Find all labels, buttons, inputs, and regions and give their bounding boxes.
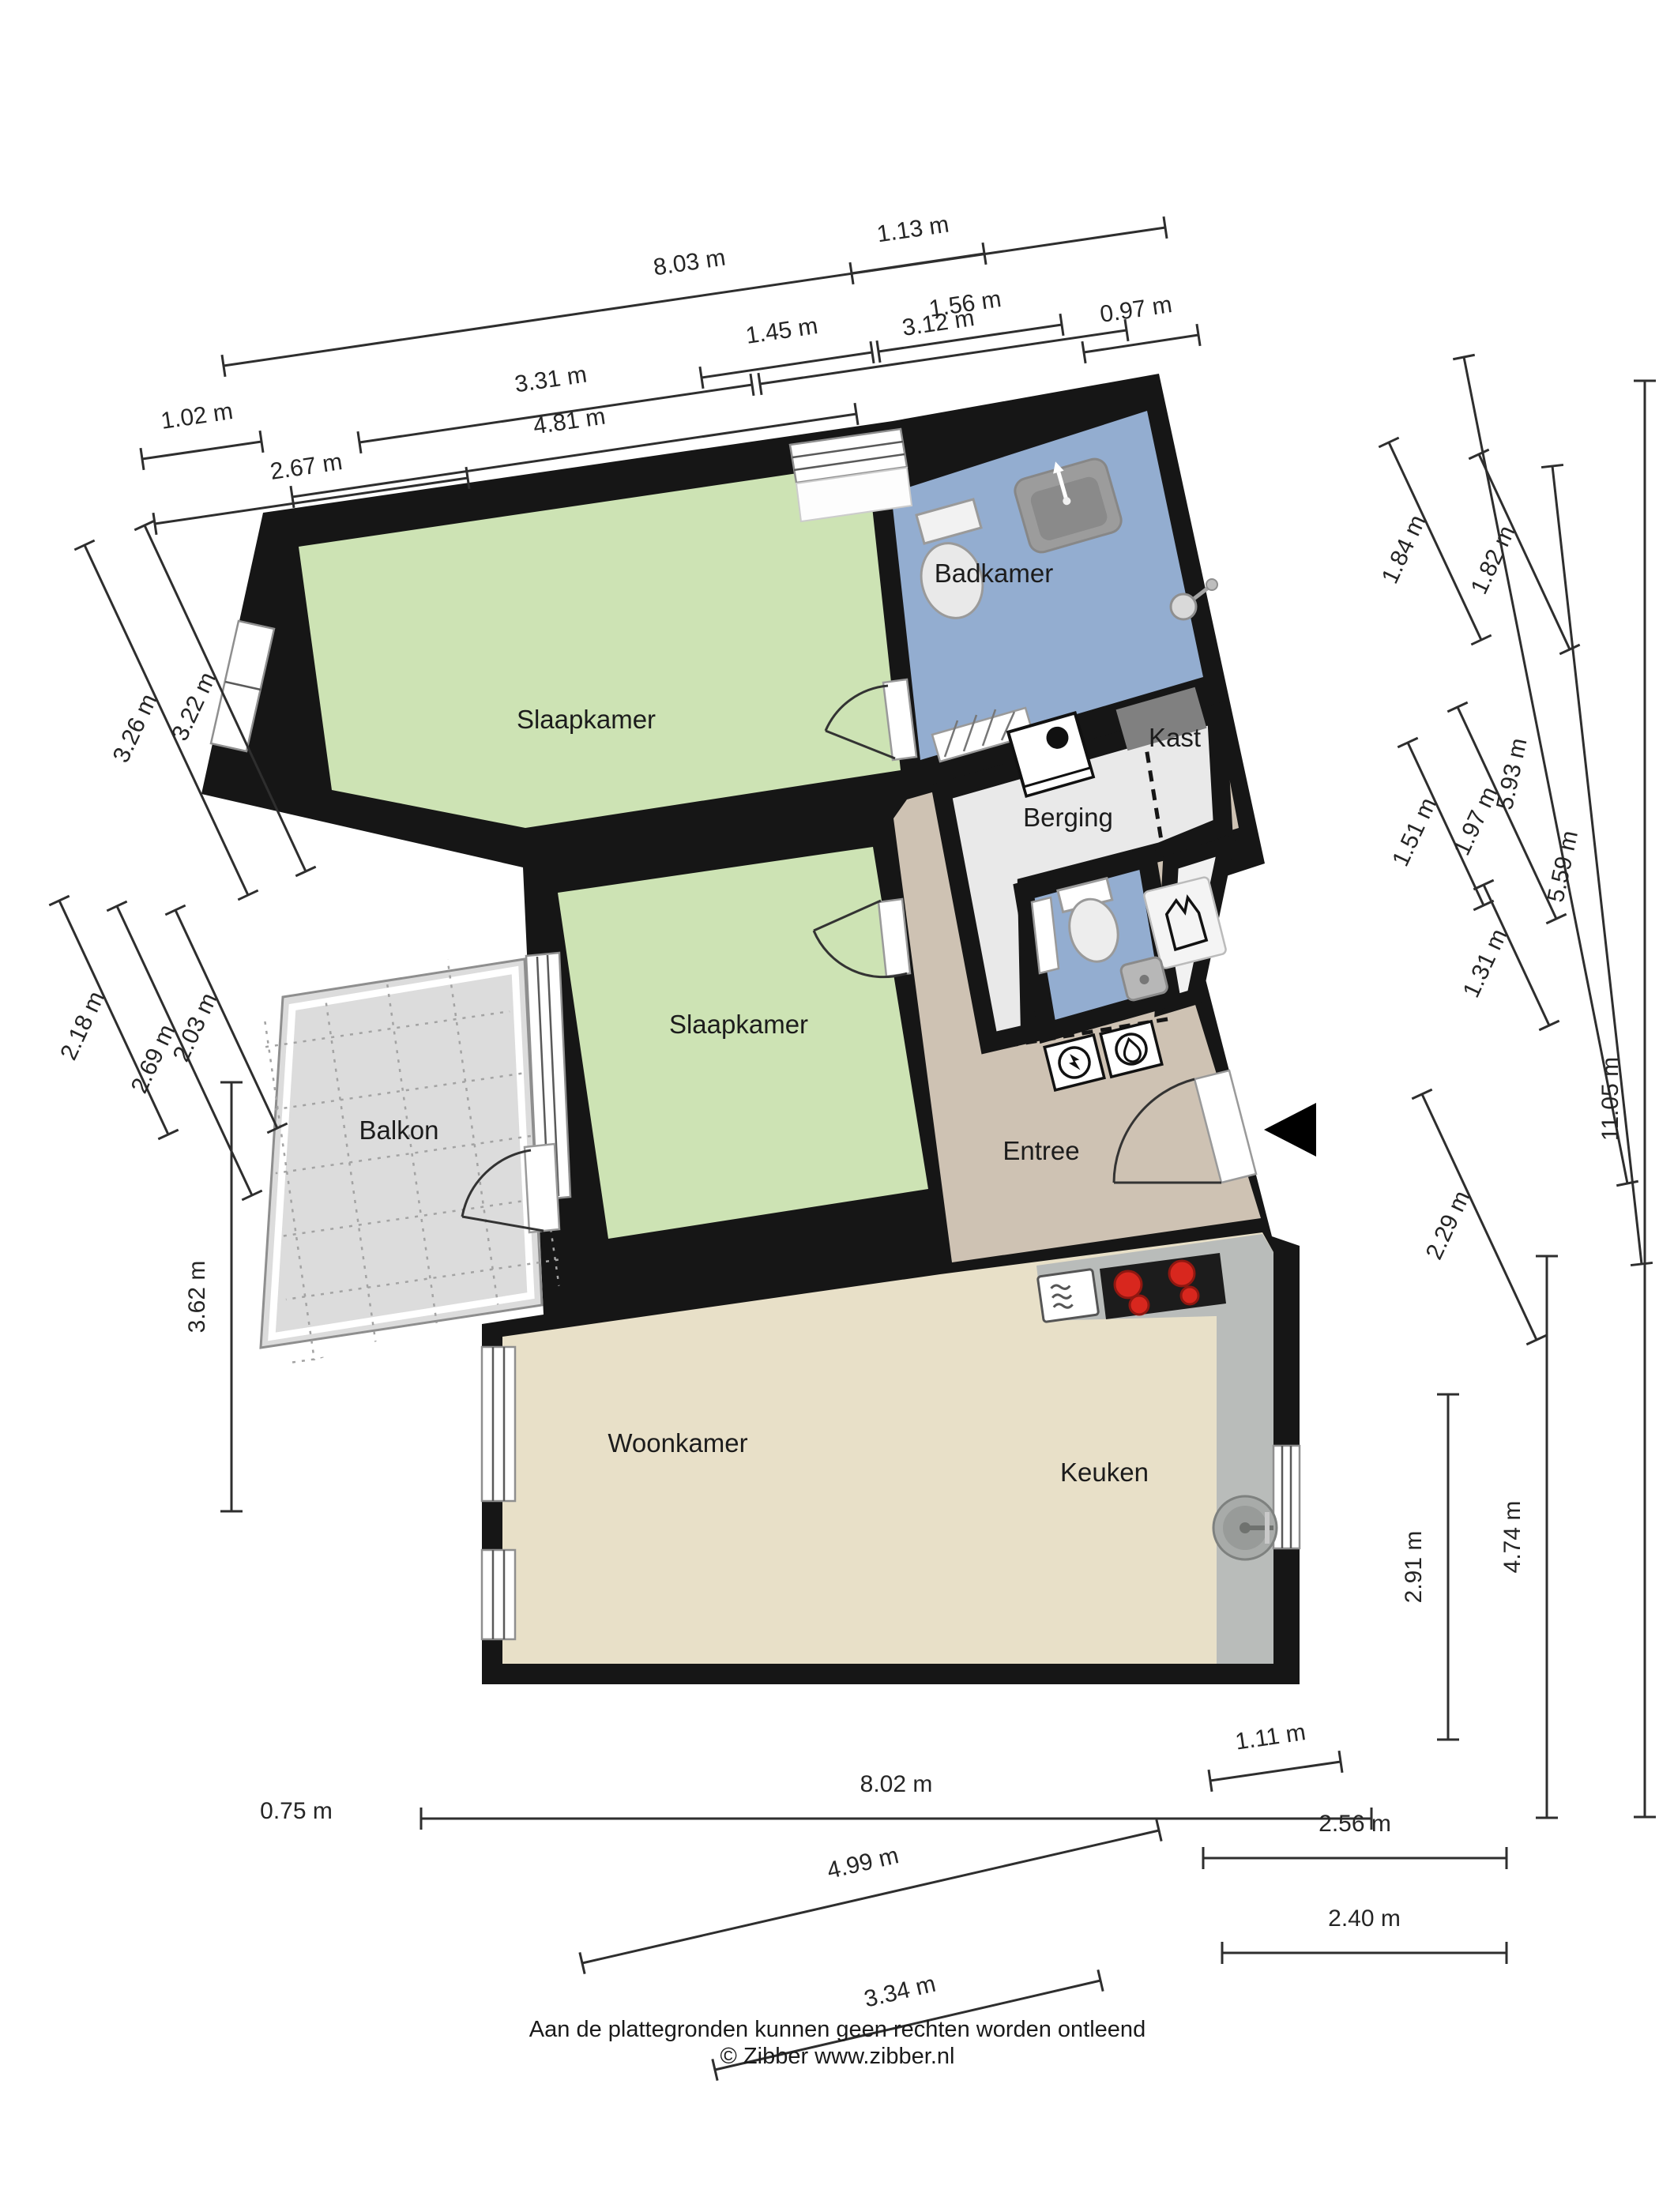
room-slaapkamer-2 [558,847,928,1239]
dimension-label: 1.02 m [159,398,235,434]
dimension-label: 1.45 m [744,313,820,349]
dimension-label: 3.31 m [513,362,589,398]
dimension-label: 1.13 m [875,212,951,248]
room-label-keuken: Keuken [1060,1458,1149,1487]
dimension-label: 0.97 m [1098,292,1174,328]
dimension-1.31m: 1.31 m [1458,880,1559,1030]
dimension-4.74m: 4.74 m [1499,1256,1558,1818]
dimension-label: 1.31 m [1458,925,1513,1002]
room-label-balkon: Balkon [359,1115,439,1145]
dimension-3.62m: 3.62 m [184,1082,243,1511]
dimension-label: 8.03 m [652,245,728,281]
floor-plan: 8.03 m1.13 m1.45 m1.56 m3.31 m3.12 m0.97… [0,0,1659,2212]
dimension-label: 11.05 m [1597,1057,1623,1141]
room-label-kast: Kast [1149,723,1201,752]
dimension-2.40m: 2.40 m [1222,1905,1507,1964]
dimension-label: 1.51 m [1387,794,1442,871]
microwave-icon [1037,1269,1098,1322]
dimension-1.11m: 1.11 m [1209,1719,1342,1792]
dimension-label: 2.40 m [1328,1905,1401,1932]
dimension-label: 4.99 m [825,1842,901,1884]
dimension-2.29m: 2.29 m [1412,1089,1546,1345]
dimension-label: 3.34 m [862,1971,939,2013]
dimension-label: 2.91 m [1401,1531,1427,1604]
dimension-11.05m: 11.05 m [1597,381,1656,1817]
dimension-8.02m: 8.02 m [421,1771,1371,1830]
dimension-5.59m: 5.59 m [1541,465,1653,1265]
disclaimer-text: Aan de plattegronden kunnen geen rechten… [529,2017,1145,2042]
room-label-woonkamer: Woonkamer [608,1428,747,1458]
dimension-label: 2.29 m [1421,1187,1476,1263]
dimension-label: 1.11 m [1234,1719,1307,1755]
dimension-label: 5.93 m [1492,735,1532,812]
dimension-label: 2.03 m [168,989,223,1066]
room-label-entree: Entree [1003,1136,1079,1165]
room-label-badkamer: Badkamer [935,559,1053,588]
dimension-label: 2.56 m [1319,1811,1391,1837]
dimension-label: 4.81 m [532,404,608,440]
dimension-label: 0.75 m [260,1798,333,1824]
dimension-3.31m: 3.31 m [358,362,754,453]
dimension-label: 1.84 m [1377,511,1431,588]
dimension-2.91m: 2.91 m [1401,1394,1459,1740]
dimension-1.02m: 1.02 m [141,398,263,470]
window-woonkamer-left-2-icon [482,1550,515,1639]
dimension-label: 2.18 m [55,987,110,1064]
dimension-1.13m: 1.13 m [850,212,986,284]
room-label-slaapkamer-1: Slaapkamer [517,705,656,734]
dimension-2.03m: 2.03 m [165,905,287,1133]
room-label-berging: Berging [1023,803,1113,832]
dimension-0.97m: 0.97 m [1082,292,1200,363]
dimension-label: 5.59 m [1543,829,1583,905]
room-label-slaapkamer-2: Slaapkamer [669,1010,808,1039]
dimension-1.84m: 1.84 m [1377,438,1492,645]
dimension-label: 3.12 m [901,305,976,341]
window-woonkamer-left-1-icon [482,1347,515,1501]
dimension-8.03m: 8.03 m [222,216,1167,377]
dimension-label: 4.74 m [1499,1501,1525,1574]
copyright-text: © Zibber www.zibber.nl [720,2044,955,2069]
dimension-label: 1.82 m [1466,521,1521,598]
window-top-icon [0,0,907,483]
dimension-label: 3.62 m [184,1261,210,1334]
dimension-label: 2.67 m [269,449,344,485]
dimension-4.99m: 4.99 m [580,1819,1161,1973]
dimension-2.18m: 2.18 m [49,896,178,1139]
dimension-label: 3.26 m [108,690,163,766]
dimension-label: 8.02 m [860,1771,933,1797]
kitchen-sink-icon [1213,1496,1277,1559]
balcony-floor [261,959,542,1348]
dimension-1.45m: 1.45 m [700,313,874,389]
dimension-0.75m: 0.75 m [260,1798,333,1824]
entrance-arrow-icon [1264,1103,1316,1157]
